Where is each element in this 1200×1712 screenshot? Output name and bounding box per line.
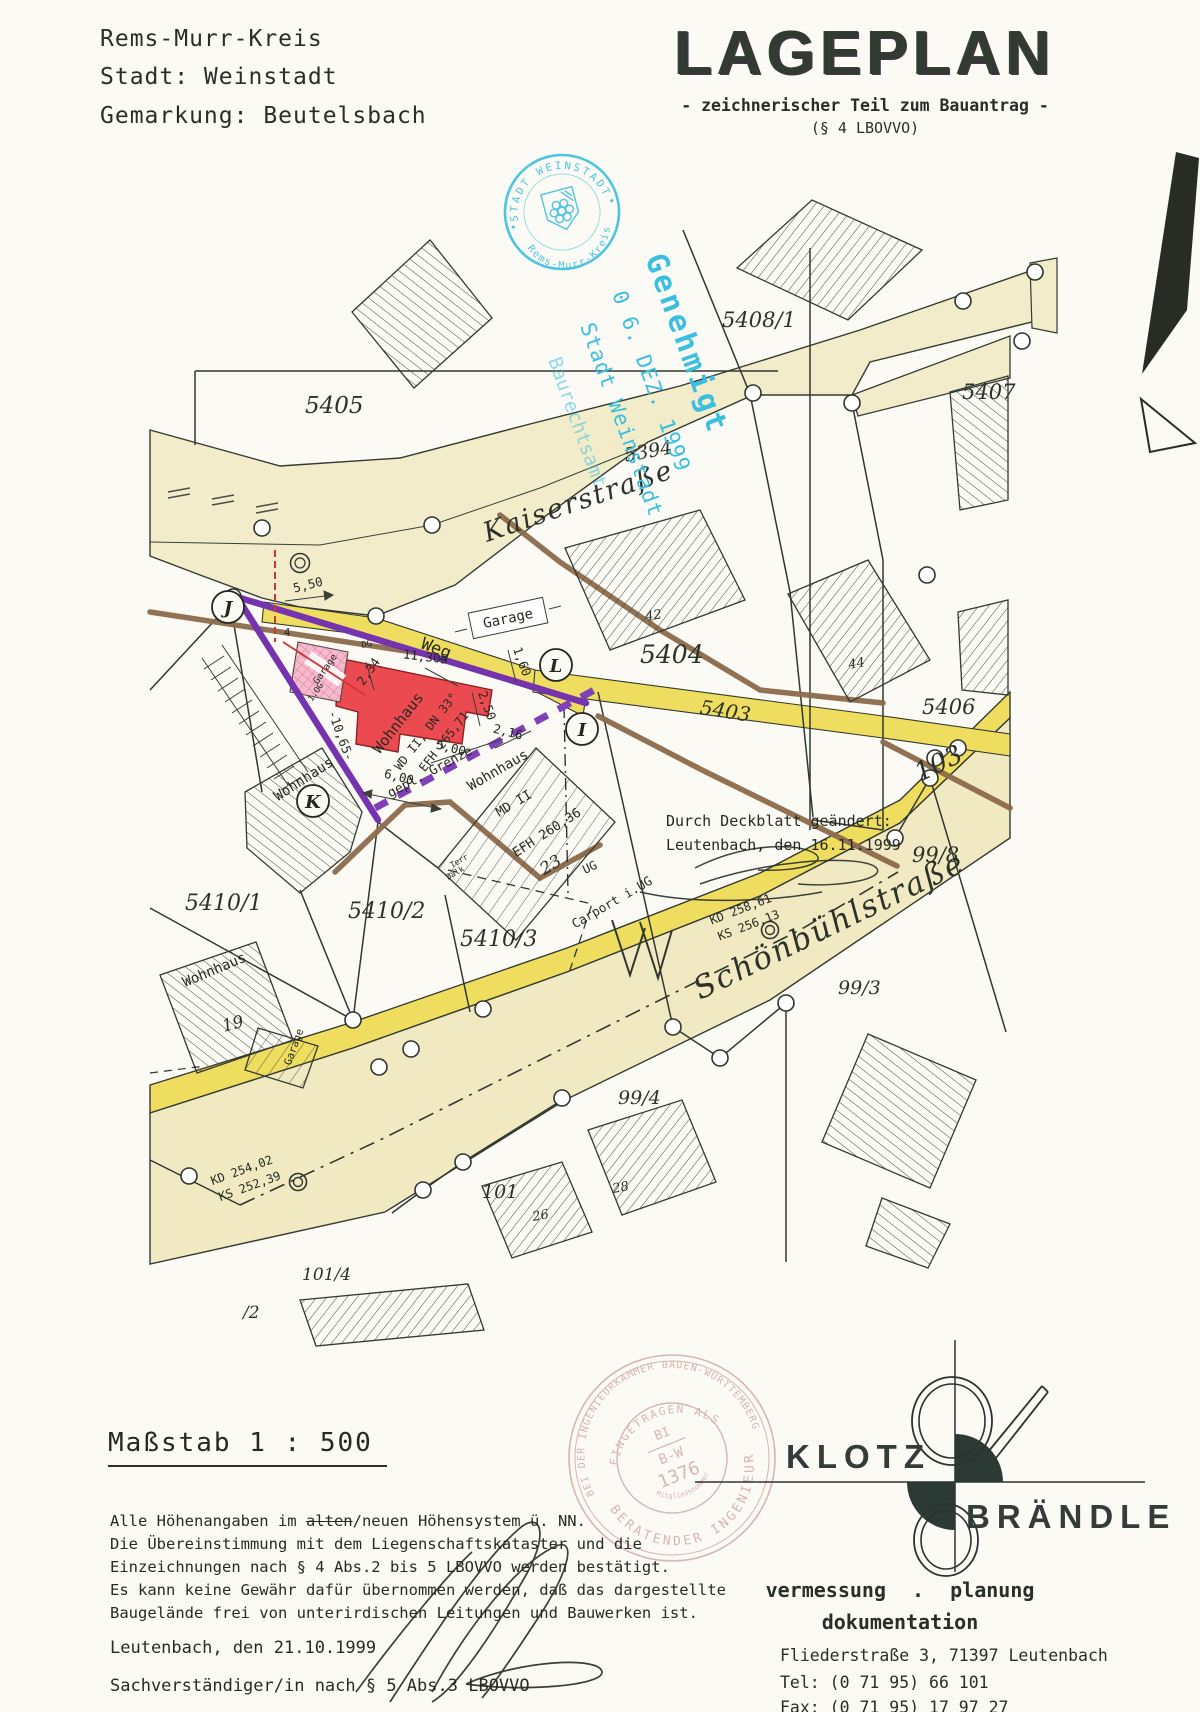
building-42 <box>565 510 745 650</box>
dg-label: DG <box>361 639 374 651</box>
parcel-101-4: 101/4 <box>302 1265 351 1285</box>
firm-fax: Fax: (0 71 95) 17 97 27 <box>780 1694 1008 1712</box>
parcel-5405: 5405 <box>305 393 364 419</box>
point-K: K <box>304 792 322 813</box>
note-line1: Durch Deckblatt geändert: <box>666 812 892 830</box>
building-hatched <box>352 240 492 388</box>
point-L: L <box>549 656 563 677</box>
parcel-99-3: 99/3 <box>838 977 881 999</box>
engineer-stamp-bi: BI <box>652 1424 672 1444</box>
legal-l1a: Alle Höhenangaben im <box>110 1512 306 1530</box>
building-hatched <box>300 1284 484 1346</box>
legal-l1b-struck: alten <box>306 1512 353 1530</box>
building-hatched <box>958 600 1008 695</box>
parcel-5410-1: 5410/1 <box>185 891 262 916</box>
firm-name-braendle: BRÄNDLE <box>966 1498 1176 1536</box>
approval-stamp-round: STADT WEINSTADT Rems-Murr-Kreis <box>492 142 632 285</box>
parcel-5410-3: 5410/3 <box>460 927 537 952</box>
stamp-kreis-text: Rems-Murr-Kreis <box>524 222 622 282</box>
firm-tel: Tel: (0 71 95) 66 101 <box>780 1669 989 1696</box>
point-I: I <box>577 720 587 741</box>
legal-line-1: Alle Höhenangaben im alten/neuen Höhensy… <box>110 1510 726 1533</box>
house-42: 42 <box>643 607 663 625</box>
lageplan-document: Rems-Murr-Kreis Stadt: Weinstadt Gemarku… <box>0 0 1200 1712</box>
parcel-slash2: /2 <box>241 1303 260 1323</box>
firm-address: Fliederstraße 3, 71397 Leutenbach <box>780 1642 1108 1669</box>
parcel-101: 101 <box>482 1181 518 1203</box>
firm-services-1: vermessung . planung <box>700 1578 1100 1602</box>
svg-text:STADT WEINSTADT: STADT WEINSTADT <box>497 148 614 224</box>
legal-line-2: Die Übereinstimmung mit dem Liegenschaft… <box>110 1533 726 1556</box>
dim-1065: -10,65- <box>325 708 357 763</box>
building-28 <box>588 1100 716 1215</box>
dim-4: 4 <box>284 627 290 639</box>
parcel-5406: 5406 <box>922 695 975 719</box>
parcel-5410-2: 5410/2 <box>348 899 425 924</box>
legal-line-4: Es kann keine Gewähr dafür übernommen we… <box>110 1579 726 1602</box>
scale-label: Maßstab 1 : 500 <box>108 1428 387 1467</box>
house-26: 26 <box>530 1207 550 1225</box>
building-hatched <box>866 1198 950 1268</box>
parcel-5407: 5407 <box>962 380 1016 404</box>
legal-l1c: /neuen Höhensystem ü. NN. <box>353 1512 586 1530</box>
parcel-5408-1: 5408/1 <box>722 308 796 332</box>
legal-text: Alle Höhenangaben im alten/neuen Höhensy… <box>110 1510 726 1625</box>
note-line2: Leutenbach, den 16.11.1999 <box>666 836 901 854</box>
house-44: 44 <box>846 655 866 673</box>
house-28: 28 <box>610 1179 630 1197</box>
parcel-5404: 5404 <box>640 640 704 669</box>
building-hatched <box>737 200 922 320</box>
firm-services-2: dokumentation <box>700 1610 1100 1634</box>
stamp-coat-of-arms <box>541 187 582 234</box>
svg-text:Rems-Murr-Kreis: Rems-Murr-Kreis <box>524 222 622 282</box>
stamp-city-text: STADT WEINSTADT <box>497 148 614 224</box>
expert-line: Sachverständiger/in nach § 5 Abs.3 LBOVV… <box>110 1676 530 1696</box>
building-hatched <box>822 1034 976 1188</box>
firm-name-klotz: KLOTZ <box>786 1438 931 1476</box>
north-arrow-icon <box>1141 152 1199 452</box>
legal-line-5: Baugelände frei von unterirdischen Leitu… <box>110 1602 726 1625</box>
legal-line-3: Einzeichnungen nach § 4 Abs.2 bis 5 LBOV… <box>110 1556 726 1579</box>
date-line: Leutenbach, den 21.10.1999 <box>110 1638 376 1658</box>
parcel-99-4: 99/4 <box>618 1087 661 1109</box>
